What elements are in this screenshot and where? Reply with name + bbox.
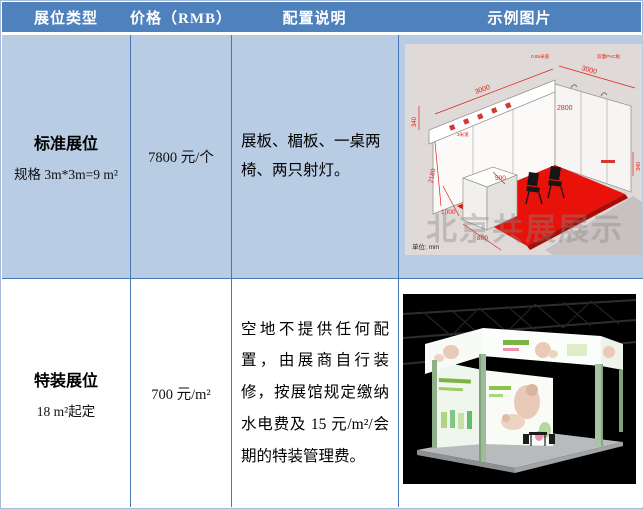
booth-pricing-table: 展位类型 价格（RMB） 配置说明 示例图片 标准展位 规格 3m*3m=9 m… (0, 0, 643, 509)
row-custom-type-cell: 特装展位 18 m²起定 (2, 279, 131, 507)
custom-booth-price: 700 元/m² (151, 383, 211, 404)
row-custom-config-cell: 空地不提供任何配置，由展商自行装修，按展馆规定缴纳水电费及 15 元/m²/会期… (232, 279, 399, 507)
row-standard-image-cell: 3000 3000 2800 340 340 2180 1000 800 500… (399, 35, 643, 279)
booth-number-mark (601, 160, 615, 163)
custom-booth-config: 空地不提供任何配置，由展商自行装修，按展馆规定缴纳水电费及 15 元/m²/会期… (241, 314, 389, 473)
dim-340-left: 340 (412, 116, 418, 127)
note-aisle-top: 0.85米道 (531, 53, 550, 60)
note-pvc-panel: 双面PVC板 (597, 53, 621, 60)
header-sample-image: 示例图片 (398, 2, 641, 32)
row-custom-price-cell: 700 元/m² (131, 279, 232, 507)
row-standard-price-cell: 7800 元/个 (131, 35, 232, 279)
dim-2800: 2800 (557, 105, 573, 112)
pricing-table-page: 展位类型 价格（RMB） 配置说明 示例图片 标准展位 规格 3m*3m=9 m… (0, 0, 643, 509)
row-standard-config-cell: 展板、楣板、一桌两椅、两只射灯。 (232, 35, 399, 279)
header-config: 配置说明 (231, 2, 398, 32)
table-body: 标准展位 规格 3m*3m=9 m² 7800 元/个 展板、楣板、一桌两椅、两… (2, 35, 641, 507)
standard-booth-config: 展板、楣板、一桌两椅、两只射灯。 (241, 128, 389, 185)
standard-booth-title: 标准展位 (34, 130, 98, 154)
custom-booth-spec: 18 m²起定 (37, 400, 95, 420)
custom-booth-title: 特装展位 (34, 367, 98, 391)
custom-booth-photo (403, 294, 636, 484)
note-aisle-3m: 3米道 (457, 131, 469, 138)
header-booth-type: 展位类型 (2, 2, 130, 32)
standard-booth-diagram: 3000 3000 2800 340 340 2180 1000 800 500… (405, 44, 642, 255)
table-header-row: 展位类型 价格（RMB） 配置说明 示例图片 (2, 2, 641, 32)
left-side-wall (433, 360, 483, 448)
unit-label: 单位: mm (412, 242, 439, 251)
header-price: 价格（RMB） (130, 2, 231, 32)
dim-500: 500 (495, 175, 506, 182)
standard-booth-price: 7800 元/个 (148, 146, 214, 167)
watermark-text: 北京共展展示 (426, 212, 624, 247)
dim-340-right: 340 (636, 162, 642, 171)
row-standard-type-cell: 标准展位 规格 3m*3m=9 m² (2, 35, 131, 279)
row-custom-image-cell (399, 279, 643, 507)
standard-booth-spec: 规格 3m*3m=9 m² (14, 163, 118, 183)
